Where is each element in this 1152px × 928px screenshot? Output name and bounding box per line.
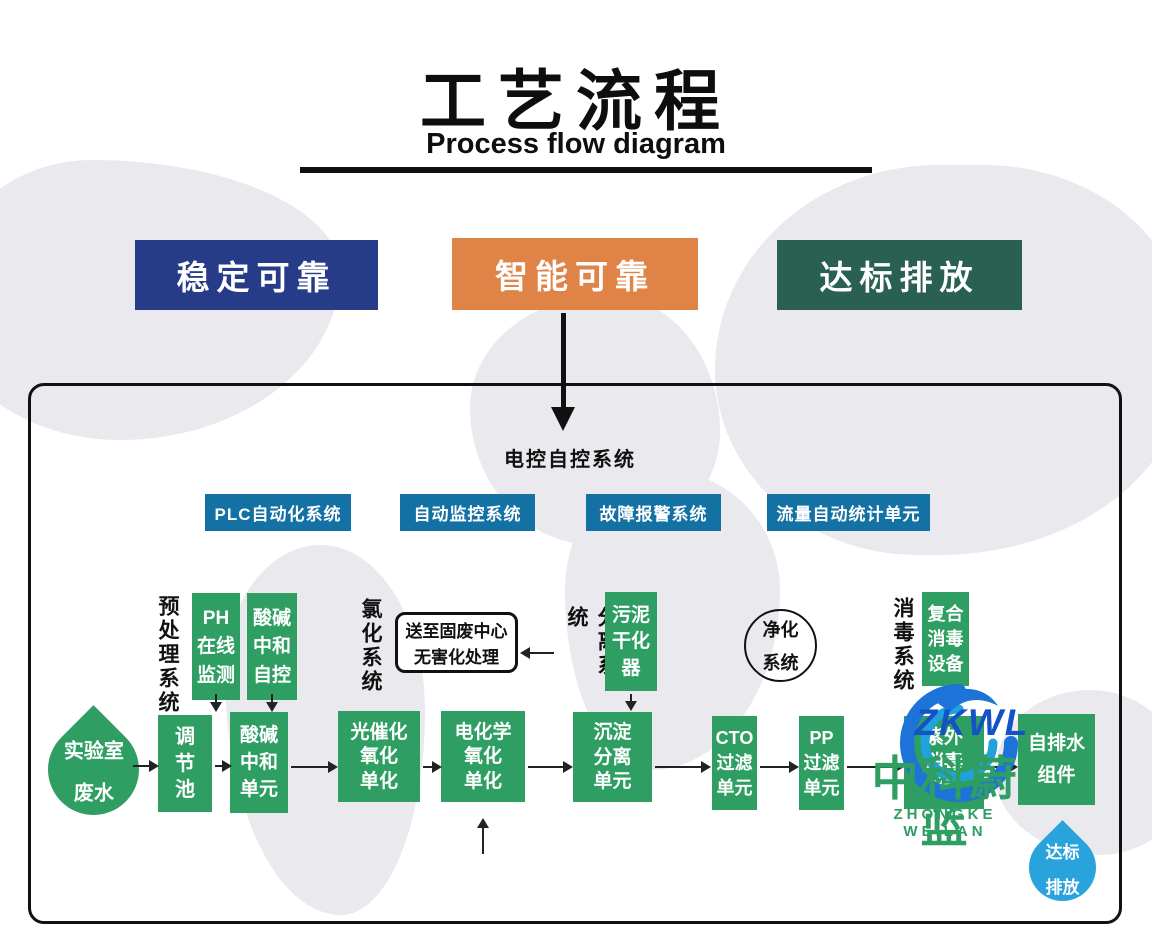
unit-line: 单元 [804, 779, 840, 797]
badge-standard-discharge: 达标排放 [777, 240, 1022, 310]
unit-line: CTO [716, 729, 754, 747]
unit-line: 自排水 [1028, 734, 1085, 753]
unit-line: 酸碱 [240, 726, 278, 745]
unit-line: 单元 [593, 772, 631, 791]
arrow-source-to-tank [133, 765, 155, 767]
unit-line: 单化 [360, 772, 398, 791]
arrow-electrochemical-to-sedimentation [528, 766, 569, 768]
unit-acid-base-auto-control: 酸碱 中和 自控 [247, 593, 297, 700]
unit-regulating-tank: 调 节 池 [158, 715, 212, 812]
badge-stable-reliable: 稳定可靠 [135, 240, 378, 310]
arrow-sedimentation-to-cto [655, 766, 707, 768]
unit-line: 节 [175, 754, 195, 774]
watermark-logo-text: ZKWL [912, 702, 1032, 744]
unit-line: 过滤 [804, 754, 840, 772]
section-chlorination-system: 氯化系统 [355, 598, 385, 694]
unit-line: 单元 [240, 780, 278, 799]
unit-line: 沉淀 [593, 723, 631, 742]
badge-intelligent-reliable: 智能可靠 [452, 238, 698, 310]
arrow-badge-to-control [561, 313, 566, 409]
unit-line: 电化学 [454, 723, 511, 742]
page-subtitle: Process flow diagram [0, 128, 1152, 161]
section-purification-system: 净化 系统 [744, 609, 817, 682]
unit-line: 氧化 [360, 747, 398, 766]
unit-line: 过滤 [717, 754, 753, 772]
unit-line: 监测 [197, 666, 235, 685]
solid-waste-note: 送至固废中心 无害化处理 [395, 612, 518, 673]
unit-line: 池 [175, 780, 195, 800]
unit-line: 光催化 [350, 723, 407, 742]
arrow-separation-to-note [524, 652, 554, 654]
unit-line: 干化 [612, 632, 650, 651]
purification-line1: 净化 [763, 616, 799, 642]
note-line1: 送至固废中心 [406, 617, 508, 642]
unit-line: 器 [621, 659, 640, 678]
arrow-photocatalytic-to-electrochemical [423, 766, 438, 768]
arrow-into-electrochemical-up [482, 821, 484, 854]
subsystem-plc-automation: PLC自动化系统 [205, 494, 351, 531]
arrow-neutralization-to-photocatalytic [291, 766, 334, 768]
arrow-cto-to-pp [760, 766, 795, 768]
unit-line: 调 [175, 727, 195, 747]
unit-photocatalytic-oxidation: 光催化 氧化 单化 [338, 711, 420, 802]
arrow-sludge-dryer-down [630, 694, 632, 708]
unit-line: 氧化 [464, 747, 502, 766]
unit-pp-filter: PP 过滤 单元 [799, 716, 844, 810]
title-underline [300, 167, 872, 173]
unit-line: 单元 [717, 779, 753, 797]
note-line2: 无害化处理 [414, 643, 499, 668]
unit-line: 组件 [1037, 766, 1075, 785]
arrow-acid-base-control-down [271, 694, 273, 709]
drop-line: 废水 [74, 776, 114, 805]
unit-line: 消毒 [928, 630, 964, 648]
control-system-title: 电控自控系统 [460, 443, 680, 472]
unit-line: 分离 [593, 748, 631, 767]
unit-line: 污泥 [612, 606, 650, 625]
unit-cto-filter: CTO 过滤 单元 [712, 716, 757, 810]
unit-line: 设备 [928, 655, 964, 673]
drop-line: 实验室 [64, 734, 124, 763]
unit-line: PP [809, 729, 833, 747]
purification-line2: 系统 [763, 649, 799, 675]
unit-sludge-dryer: 污泥 干化 器 [605, 592, 657, 691]
process-flow-poster: 工艺流程 Process flow diagram 稳定可靠 智能可靠 达标排放… [0, 0, 1152, 928]
unit-ph-online-monitor: PH 在线 监测 [192, 593, 240, 700]
unit-line: PH [203, 609, 229, 628]
unit-line: 单化 [464, 772, 502, 791]
unit-line: 中和 [253, 637, 291, 656]
unit-line: 酸碱 [253, 609, 291, 628]
unit-electrochemical-oxidation: 电化学 氧化 单化 [441, 711, 525, 802]
subsystem-auto-monitoring: 自动监控系统 [400, 494, 535, 531]
unit-line: 复合 [928, 605, 964, 623]
unit-acid-base-neutralization: 酸碱 中和 单元 [230, 712, 288, 813]
unit-line: 中和 [240, 753, 278, 772]
unit-line: 自控 [253, 666, 291, 685]
watermark-company-en: ZHONGKE WEILAN [862, 806, 1028, 840]
subsystem-flow-statistics: 流量自动统计单元 [767, 494, 930, 531]
arrow-tank-to-neutralization [215, 765, 228, 767]
unit-composite-disinfection-equipment: 复合 消毒 设备 [922, 592, 969, 686]
drop-line: 达标 [1046, 838, 1080, 863]
section-pretreatment-system: 预处理系统 [152, 595, 182, 717]
subsystem-fault-alarm: 故障报警系统 [586, 494, 721, 531]
drop-line: 排放 [1046, 873, 1080, 898]
unit-sedimentation-separation: 沉淀 分离 单元 [573, 712, 652, 802]
arrow-ph-monitor-down [215, 694, 217, 709]
unit-line: 在线 [197, 637, 235, 656]
